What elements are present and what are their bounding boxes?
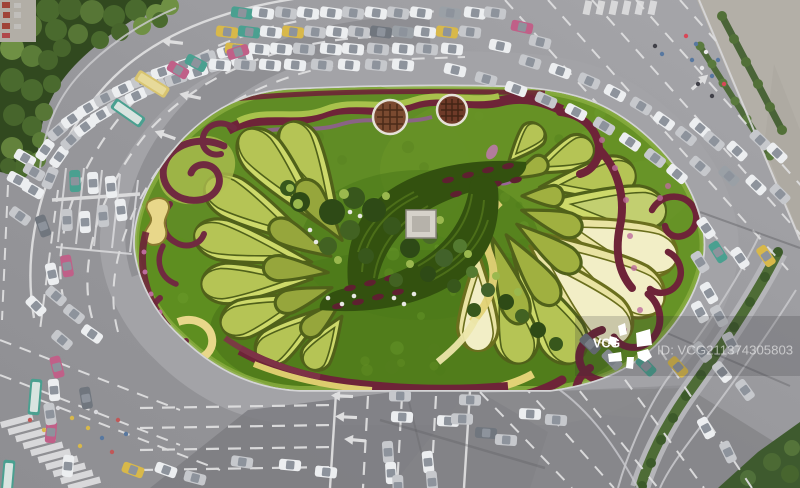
svg-text:VCG: VCG [593, 337, 620, 351]
svg-text:ID: VCG211374305803: ID: VCG211374305803 [657, 343, 793, 358]
